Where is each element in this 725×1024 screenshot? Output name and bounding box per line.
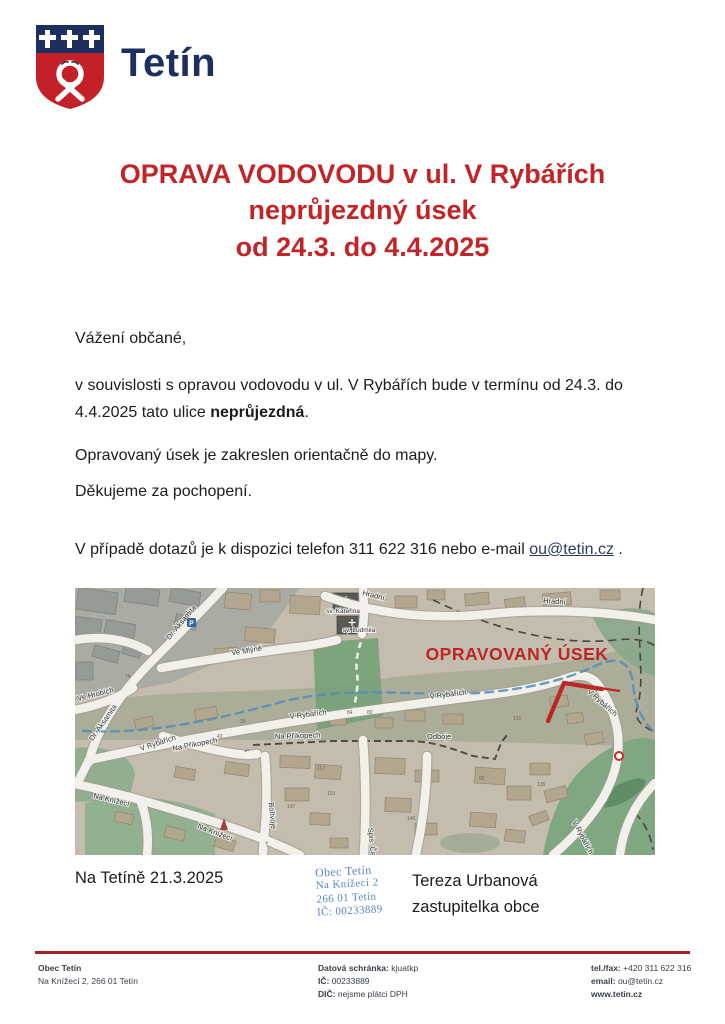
street-label-na-prikopech-2: Na Příkopech	[275, 730, 321, 741]
paragraph-main-end: .	[304, 404, 308, 421]
email-link[interactable]: ou@tetin.cz	[529, 541, 614, 558]
paragraph-main-text: v souvislosti s opravou vodovodu v ul. V…	[75, 377, 623, 421]
svg-text:84: 84	[347, 710, 353, 716]
svg-text:25: 25	[240, 719, 246, 725]
map-image: 74 25 43 84 80 92 131 135 147 117 119 14…	[75, 588, 655, 855]
svg-text:119: 119	[327, 791, 335, 797]
svg-text:←: ←	[242, 744, 253, 755]
footer-registry-column: Datová schránka: kjuatkp IČ: 00233889 DI…	[318, 962, 418, 1000]
official-stamp: Obec Tetín Na Knížecí 2 266 01 Tetín IČ:…	[315, 862, 383, 919]
tetin-shield-icon	[33, 22, 107, 112]
svg-text:P: P	[189, 621, 194, 628]
contact-text: V případě dotazů je k dispozici telefon …	[75, 541, 529, 558]
footer-contact-column: tel./fax: +420 311 622 316 email: ou@tet…	[591, 962, 691, 1000]
title-line-2: neprůjezdný úsek	[0, 192, 725, 228]
logo-wordmark: Tetín	[121, 41, 216, 86]
svg-text:74: 74	[125, 674, 131, 680]
svg-text:131: 131	[513, 716, 522, 722]
contact-end: .	[614, 541, 623, 558]
svg-text:43: 43	[217, 734, 223, 740]
footer-databox-label: Datová schránka:	[318, 963, 389, 973]
svg-text:140: 140	[407, 816, 416, 822]
paragraph-map-note: Opravovaný úsek je zakreslen orientačně …	[75, 447, 438, 465]
poi-label-sv-katerina: sv. Kateřina	[326, 608, 360, 615]
notice-title: OPRAVA VODOVODU v ul. V Rybářích neprůje…	[0, 156, 725, 265]
street-label-hradni-2: Hradní	[543, 596, 567, 607]
footer-tel-value: +420 311 622 316	[621, 963, 692, 973]
street-label-odboje: Odboje	[427, 732, 451, 741]
footer-web: www.tetin.cz	[591, 989, 642, 999]
footer-org-name: Obec Tetín	[38, 963, 81, 973]
svg-text:135: 135	[537, 782, 546, 788]
notice-page: Tetín OPRAVA VODOVODU v ul. V Rybářích n…	[0, 0, 725, 1024]
footer-org-address: Na Knížecí 2, 266 01 Tetín	[38, 976, 138, 986]
title-line-1: OPRAVA VODOVODU v ul. V Rybářích	[0, 156, 725, 192]
parking-icon: P	[187, 618, 196, 628]
footer-dic-value: nejsme plátci DPH	[335, 989, 407, 999]
signer-role: zastupitelka obce	[412, 895, 540, 921]
footer-email-value: ou@tetin.cz	[616, 976, 663, 986]
footer-tel-label: tel./fax:	[591, 963, 621, 973]
poi-label-sv-ludmila: sv. Ludmila	[343, 627, 376, 634]
footer-email-label: email:	[591, 976, 616, 986]
footer-ic-label: IČ:	[318, 976, 329, 986]
date-place: Na Tetíně 21.3.2025	[75, 869, 223, 888]
signer-name: Tereza Urbanová	[412, 869, 540, 895]
road-circle-marker	[615, 752, 623, 760]
contact-line: V případě dotazů je k dispozici telefon …	[75, 541, 623, 559]
svg-text:92: 92	[479, 776, 485, 782]
footer-databox-value: kjuatkp	[389, 963, 418, 973]
title-line-3: od 24.3. do 4.4.2025	[0, 229, 725, 265]
svg-text:147: 147	[287, 804, 296, 810]
svg-text:←: ←	[263, 839, 274, 849]
footer-ic-value: 00233889	[329, 976, 369, 986]
street-map: 74 25 43 84 80 92 131 135 147 117 119 14…	[75, 588, 655, 855]
svg-text:80: 80	[367, 710, 373, 716]
footer-org-column: Obec Tetín Na Knížecí 2, 266 01 Tetín	[38, 962, 138, 988]
footer-divider	[35, 951, 690, 954]
signature-block: Tereza Urbanová zastupitelka obce	[412, 869, 540, 920]
footer-dic-label: DIČ:	[318, 989, 335, 999]
paragraph-thanks: Děkujeme za pochopení.	[75, 483, 252, 501]
paragraph-main-bold: neprůjezdná	[210, 404, 304, 421]
stamp-line-4: IČ: 00233889	[317, 903, 383, 920]
municipality-logo: Tetín	[33, 22, 216, 112]
paragraph-main: v souvislosti s opravou vodovodu v ul. V…	[75, 372, 655, 426]
svg-text:117: 117	[317, 766, 325, 772]
salutation: Vážení občané,	[75, 330, 186, 348]
repair-section-label: OPRAVOVANÝ ÚSEK	[426, 643, 609, 664]
